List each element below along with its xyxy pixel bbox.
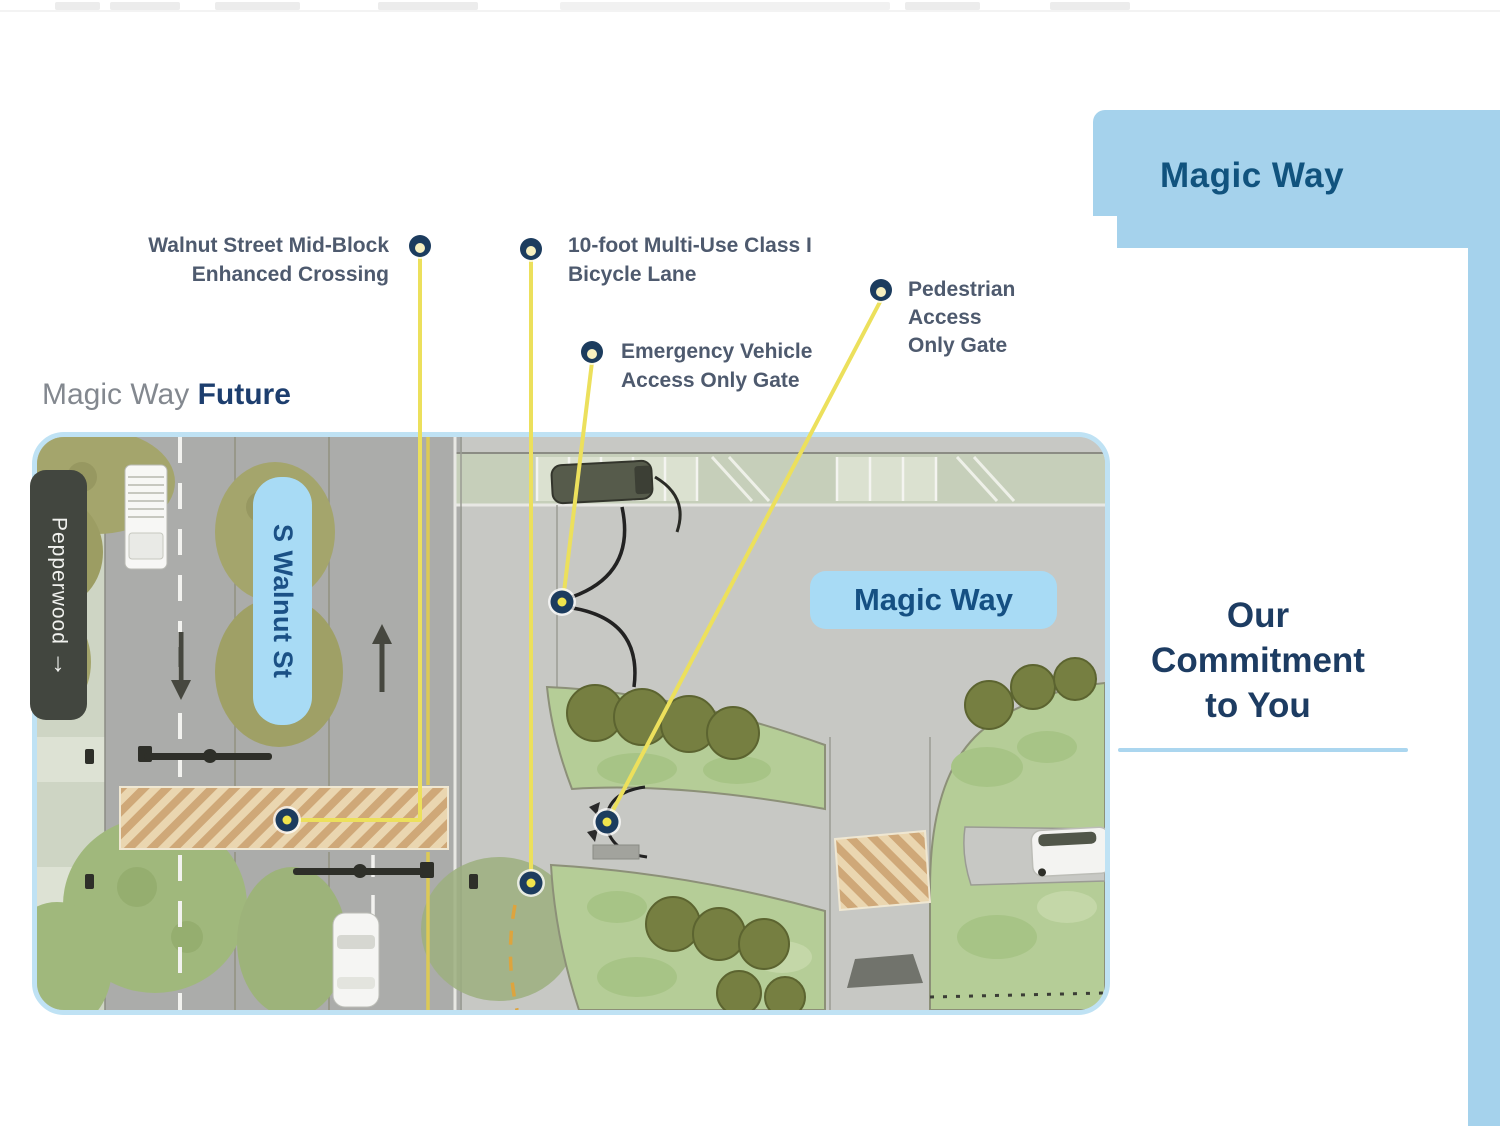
- side-panel-band-lower: [1117, 214, 1500, 248]
- page-title-emphasis: Future: [198, 378, 291, 411]
- pepperwood-street-label: Pepperwood: [47, 517, 71, 645]
- label-walnut-crossing: Walnut Street Mid-Block Enhanced Crossin…: [148, 231, 389, 289]
- marker-pedestrian-label: [868, 277, 894, 303]
- panel-title: Magic Way: [1160, 156, 1344, 196]
- magic-way-road-label: Magic Way: [854, 582, 1013, 618]
- side-panel-edge-strip: [1468, 214, 1500, 1126]
- east-crossing: [835, 831, 930, 910]
- top-artifact-strip: [0, 0, 1500, 12]
- site-plan-graphic: [37, 437, 1105, 1010]
- panel-subtitle-line: Our: [1108, 593, 1408, 638]
- magic-way-road-sign: Magic Way: [810, 571, 1057, 629]
- midblock-crossing: [120, 787, 448, 849]
- panel-subtitle-line: Commitment: [1108, 638, 1408, 683]
- panel-subtitle: Our Commitment to You: [1108, 593, 1408, 728]
- marker-crossing-label: [407, 233, 433, 259]
- panel-divider: [1118, 748, 1408, 752]
- speed-table: [847, 954, 923, 988]
- marker-emergency-label: [579, 339, 605, 365]
- truck-icon: [125, 465, 167, 569]
- walnut-street-sign: S Walnut St: [253, 477, 312, 725]
- down-arrow-icon: ↓: [52, 651, 66, 673]
- label-pedestrian-gate: Pedestrian Access Only Gate: [908, 276, 1015, 360]
- parked-car-icon: [1031, 827, 1105, 877]
- page-title: Magic Way Future: [42, 378, 291, 412]
- walnut-street-label: S Walnut St: [267, 524, 298, 679]
- pepperwood-street-sign: Pepperwood ↓: [30, 470, 87, 720]
- label-bicycle-lane: 10-foot Multi-Use Class I Bicycle Lane: [568, 231, 812, 289]
- marker-bike-label: [518, 236, 544, 262]
- car-icon: [333, 913, 379, 1007]
- site-plan-map: [32, 432, 1110, 1015]
- label-emergency-gate: Emergency Vehicle Access Only Gate: [621, 337, 812, 395]
- panel-subtitle-line: to You: [1108, 683, 1408, 728]
